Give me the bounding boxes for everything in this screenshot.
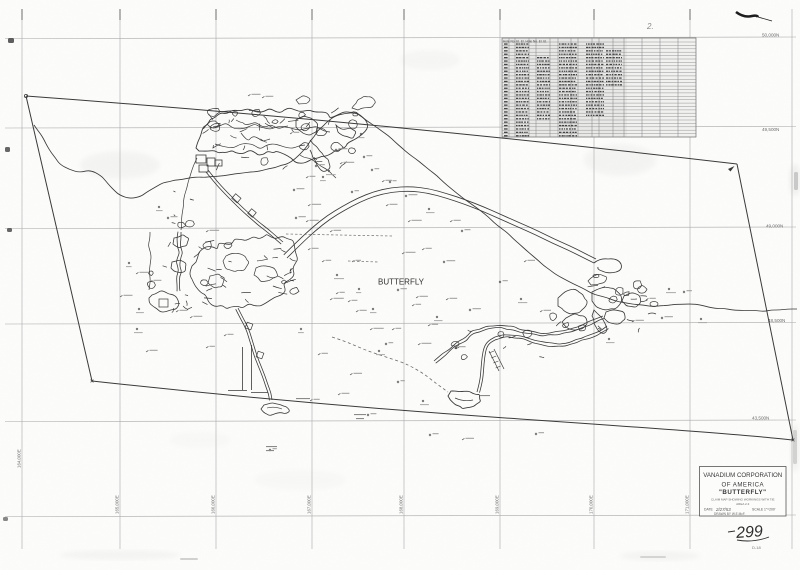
svg-text:AREA 2-3: AREA 2-3: [736, 502, 750, 506]
svg-text:CLAIM MAP SHOWING WORKINGS WIT: CLAIM MAP SHOWING WORKINGS WITH TIE: [711, 498, 774, 502]
svg-text:171,000E: 171,000E: [685, 495, 690, 514]
svg-text:D-18: D-18: [752, 545, 761, 550]
svg-text:BUTTERFLY: BUTTERFLY: [378, 278, 425, 287]
svg-text:Hole No. El. El. Hole No. E: Hole No. El. El. Hole No. El. El.: [503, 40, 547, 44]
svg-text:43,500N: 43,500N: [752, 416, 769, 421]
svg-text:165,000E: 165,000E: [115, 495, 120, 514]
svg-text:170,000E: 170,000E: [589, 495, 594, 514]
svg-text:48,500N: 48,500N: [768, 318, 785, 323]
svg-text:50,000N: 50,000N: [762, 33, 779, 38]
svg-text:DRAWN BY W.E.McF.: DRAWN BY W.E.McF.: [714, 512, 745, 516]
svg-text:OF AMERICA: OF AMERICA: [721, 482, 764, 489]
svg-text:299: 299: [735, 523, 764, 542]
svg-text:168,000E: 168,000E: [399, 495, 404, 514]
svg-text:SCALE 1"=200': SCALE 1"=200': [752, 508, 776, 512]
svg-text:164,000E: 164,000E: [17, 449, 22, 468]
svg-text:49,500N: 49,500N: [762, 127, 779, 132]
svg-text:167,000E: 167,000E: [307, 495, 312, 514]
svg-text:"BUTTERFLY": "BUTTERFLY": [719, 489, 767, 496]
svg-text:166,000E: 166,000E: [211, 495, 216, 514]
svg-text:DATE: DATE: [704, 508, 714, 512]
svg-text:2.: 2.: [646, 22, 654, 31]
svg-text:VANADIUM CORPORATION: VANADIUM CORPORATION: [703, 473, 782, 479]
svg-text:49,000N: 49,000N: [766, 224, 783, 229]
svg-text:169,000E: 169,000E: [495, 495, 500, 514]
